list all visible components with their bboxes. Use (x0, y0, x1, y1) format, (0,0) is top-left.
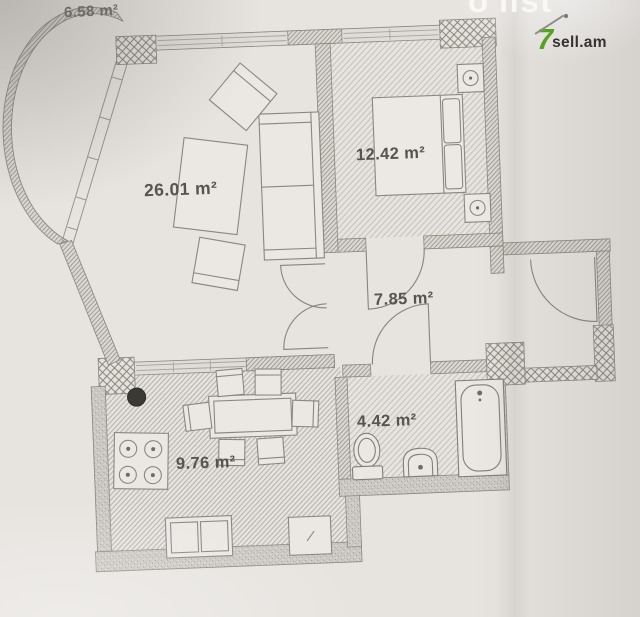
logo-text: sell.am (552, 34, 607, 53)
dining-table (209, 393, 298, 438)
structural-column (127, 388, 146, 407)
chair (255, 369, 281, 395)
bathtub (455, 379, 507, 477)
room-label-living: 26.01 m² (144, 178, 218, 202)
hall-bottom-wall (430, 360, 486, 374)
chair (216, 368, 244, 396)
living-double-door (281, 264, 328, 350)
living-furniture (167, 60, 325, 293)
needle-head-icon (564, 14, 568, 18)
entrance-right-wall (596, 251, 612, 327)
sofa (259, 112, 325, 260)
living-diagonal-wall (60, 239, 121, 367)
room-label-hall: 7.85 m² (374, 289, 434, 310)
nightstand (464, 193, 491, 222)
entrance-bottom-wall (523, 365, 597, 382)
sellam-logo: 7 sell.am (537, 27, 607, 53)
top-wall-hatch-block (288, 29, 342, 45)
bathroom-door (370, 304, 430, 364)
chair (183, 402, 212, 431)
room-label-bedroom: 12.42 m² (356, 144, 426, 165)
chair (257, 437, 285, 465)
kitchen-sink (165, 516, 232, 559)
entrance-door (531, 257, 597, 323)
balcony-wall (0, 6, 132, 246)
room-label-bathroom: 4.42 m² (357, 411, 417, 432)
entrance-top-wall (503, 239, 610, 255)
nightstand (457, 64, 484, 93)
doors (280, 242, 598, 367)
hall-right-stub (490, 246, 504, 273)
floorplan-drawing (0, 0, 640, 617)
stove (114, 433, 169, 490)
kitchen-counter-box (288, 516, 331, 556)
room-label-balcony: 6.58 m² (64, 2, 119, 22)
watermark-text: ō'list (468, 0, 553, 20)
floorplan-photo: 6.58 m² 26.01 m² 12.42 m² 7.85 m² 4.42 m… (0, 0, 640, 617)
hall-top-wall (338, 238, 366, 252)
bathroom-sink (403, 448, 438, 477)
balcony-window-wall (53, 45, 139, 251)
armchair (192, 237, 245, 290)
room-label-kitchen: 9.76 m² (176, 453, 236, 474)
chair (292, 400, 319, 427)
wall-pier (116, 35, 157, 65)
hall-bottom-wall (343, 364, 371, 377)
